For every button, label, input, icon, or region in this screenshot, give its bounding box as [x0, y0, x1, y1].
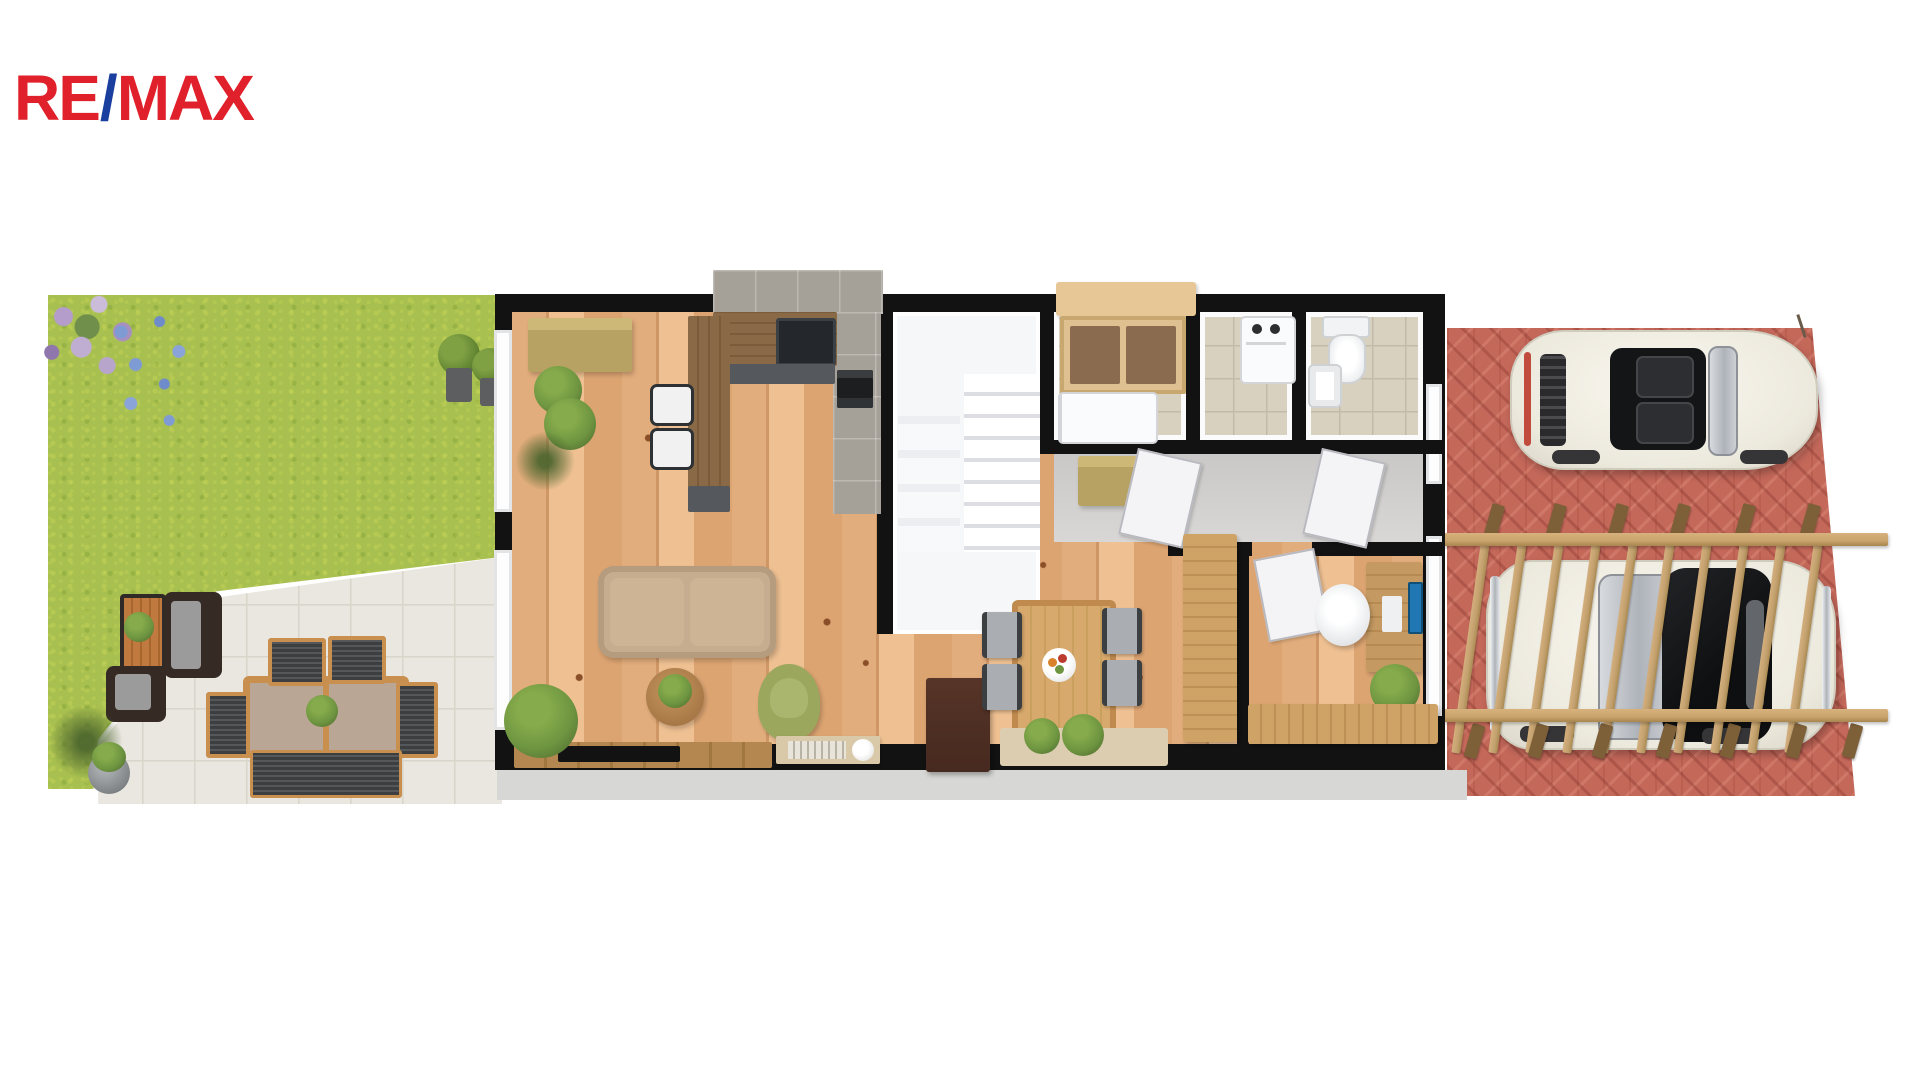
pantry-wardrobe-top	[1056, 282, 1196, 316]
houseplant-palm	[514, 432, 576, 490]
planter-plant	[124, 612, 154, 642]
remax-logo: RE/MAX	[14, 66, 253, 130]
wicker-sofa	[164, 592, 222, 678]
dining-chair	[982, 612, 1022, 658]
flower-pot-plant	[92, 742, 126, 772]
car-seat	[1636, 356, 1694, 398]
logo-re: RE	[14, 62, 99, 134]
table-centerpiece	[306, 695, 338, 727]
floor-plan-render: RE/MAX	[0, 0, 1920, 1080]
washer-knob	[1252, 324, 1262, 334]
wardrobe-panel	[1070, 326, 1120, 384]
dining-chair	[1102, 608, 1142, 654]
office-desk	[1366, 562, 1422, 672]
washing-machine	[1240, 316, 1296, 384]
armchair-seat	[770, 678, 808, 718]
living-room-sofa	[598, 566, 776, 658]
green-armchair	[758, 664, 820, 740]
floor-plant	[504, 684, 578, 758]
car-rear-vents	[1540, 354, 1566, 446]
wall-room-divider	[1186, 294, 1200, 454]
convertible-car	[1510, 330, 1818, 470]
outdoor-chair	[396, 682, 438, 758]
wardrobe-panel	[1126, 326, 1176, 384]
kitchen-tile-bump	[713, 270, 883, 314]
flower-bed-blue	[102, 306, 198, 436]
pantry-wardrobe	[1060, 316, 1186, 394]
dark-cabinet	[926, 678, 990, 772]
wall-hallway-bottom	[1312, 542, 1445, 556]
washer-lid-line	[1246, 342, 1286, 345]
kitchen-island	[688, 316, 730, 488]
logo-slash: /	[99, 62, 117, 134]
stair-shelving	[898, 416, 960, 552]
keyboard	[1382, 596, 1402, 632]
window-right-glazing	[1426, 536, 1442, 716]
rug-plant	[1062, 714, 1104, 756]
dining-chair	[982, 664, 1022, 710]
outdoor-bench	[250, 750, 402, 798]
tall-wardrobe	[1183, 534, 1237, 742]
kitchen-sideboard	[528, 318, 632, 372]
outdoor-chair	[206, 692, 250, 758]
car-open-cockpit	[1610, 348, 1706, 450]
kitchen-base-cabinets	[725, 364, 835, 384]
dining-table	[1012, 600, 1116, 738]
armchair-cushion	[115, 674, 151, 710]
car-windshield	[1708, 346, 1738, 456]
car-rear-stripe	[1524, 352, 1531, 446]
office-sideboard	[1248, 704, 1438, 744]
car-rear-bumper	[1822, 586, 1831, 722]
car-seat	[1636, 402, 1694, 444]
car-wheel	[1552, 450, 1600, 464]
window-left-glazing	[494, 330, 512, 512]
coffee-table-plant	[658, 674, 692, 708]
kitchen-appliance-column	[833, 312, 881, 514]
logo-max: MAX	[117, 62, 253, 134]
pergola-beam-top	[1443, 533, 1888, 546]
pantry-counter	[1058, 392, 1158, 444]
washer-knob	[1270, 324, 1280, 334]
outdoor-chair	[268, 638, 326, 686]
window-right-glazing	[1426, 384, 1442, 484]
sofa-seat-cushion	[610, 578, 684, 646]
sofa-seat-cushion	[690, 578, 764, 646]
wall-left-segment	[495, 512, 512, 550]
rug-plant	[1024, 718, 1060, 754]
house-plinth	[497, 770, 1467, 800]
pergola-beam-bottom	[1443, 709, 1888, 722]
bathroom-sink	[1308, 364, 1342, 408]
monitor	[1408, 582, 1423, 634]
side-table	[776, 736, 880, 764]
office-chair	[1316, 584, 1370, 646]
fruit	[1058, 654, 1067, 663]
wicker-armchair	[106, 666, 166, 722]
wall-left-segment	[495, 294, 512, 330]
books-stack	[788, 741, 846, 759]
dining-chair	[1102, 660, 1142, 706]
built-in-oven	[837, 370, 873, 408]
bar-stool	[650, 428, 694, 470]
fruit-bowl	[1042, 648, 1076, 682]
car-wheel	[1740, 450, 1788, 464]
bar-stool	[650, 384, 694, 426]
wall-pantry-left	[1040, 294, 1054, 454]
outdoor-chair	[328, 636, 386, 684]
sofa-cushion	[171, 601, 201, 669]
shrub-pot	[446, 368, 472, 402]
decor-shell	[852, 739, 874, 761]
outdoor-dining-table	[243, 676, 409, 758]
tv	[558, 746, 680, 762]
kitchen-sink	[776, 318, 836, 366]
stairs	[964, 374, 1040, 552]
fruit	[1055, 665, 1064, 674]
kitchen-island-end	[688, 486, 730, 512]
